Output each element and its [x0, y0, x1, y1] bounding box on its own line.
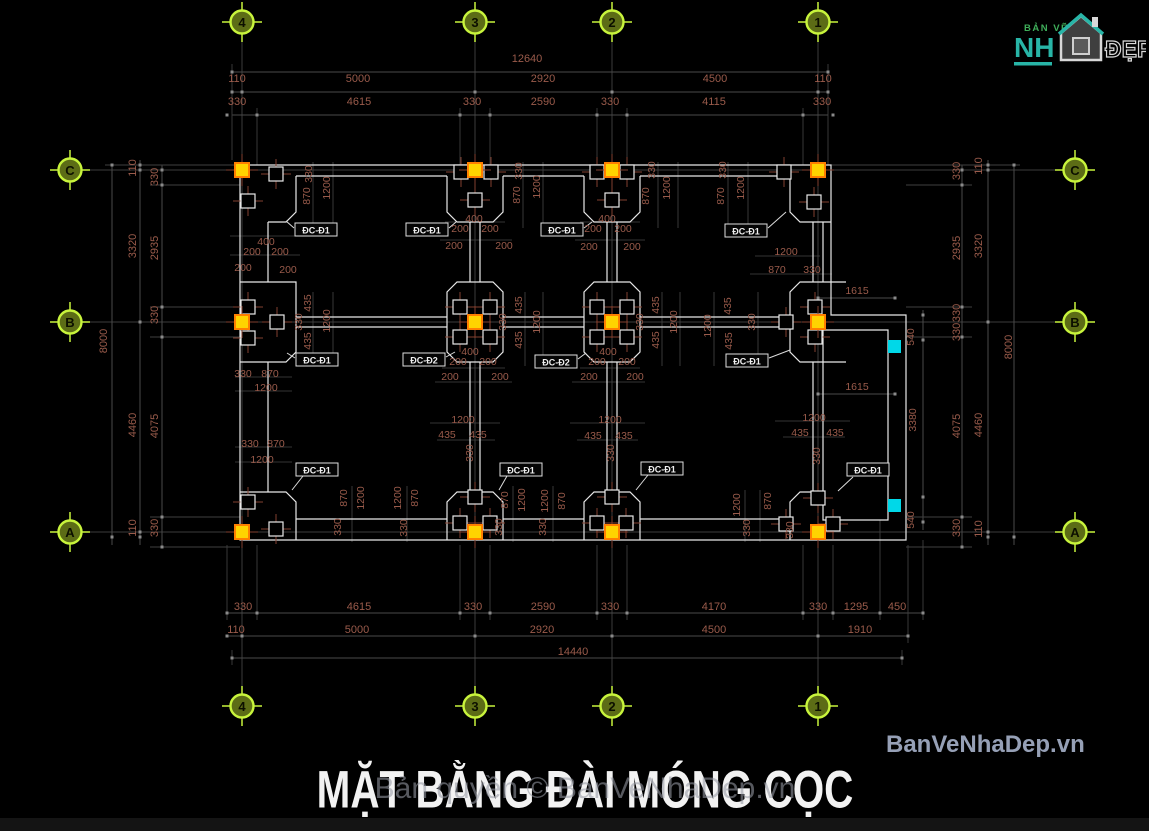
dim-label: 330	[634, 313, 646, 331]
svg-text:1: 1	[814, 15, 821, 30]
cad-viewport: 1264011050002920450011033046153302590330…	[0, 0, 1149, 831]
dim-label: 4075	[149, 414, 161, 438]
dim-tick	[226, 612, 229, 615]
axis-bubble: 4	[222, 686, 262, 726]
dim-label: 4460	[127, 413, 139, 437]
dim-tick	[111, 164, 114, 167]
axis-bubble: C	[50, 150, 90, 190]
dim-label: 870	[762, 492, 774, 510]
dim-tick	[987, 164, 990, 167]
pile-square	[605, 490, 619, 504]
dim-label: 540	[905, 511, 917, 529]
dim-label: 435	[650, 296, 662, 314]
dim-tick	[832, 612, 835, 615]
dim-tick	[987, 536, 990, 539]
dim-label: 870	[768, 264, 786, 276]
dim-label: 1200	[531, 175, 543, 199]
dim-label: 870	[499, 491, 511, 509]
dim-label: 330	[332, 518, 344, 536]
dim-label: 870	[640, 187, 652, 205]
pile-square	[483, 300, 497, 314]
dim-label: 330	[741, 519, 753, 537]
dim-tick	[474, 635, 477, 638]
dim-label: 110	[127, 519, 139, 537]
dim-tick	[817, 91, 820, 94]
svg-text:4: 4	[238, 699, 246, 714]
dim-label: 1200	[254, 382, 278, 394]
dim-tick	[922, 314, 925, 317]
dim-label: 4500	[702, 624, 726, 636]
dim-tick	[922, 612, 925, 615]
dim-tick	[256, 114, 259, 117]
dim-label: 330	[717, 161, 729, 179]
pile-square	[590, 165, 604, 179]
dim-tick	[961, 516, 964, 519]
dim-label: 1200	[516, 488, 528, 512]
dim-tick	[596, 114, 599, 117]
dim-label: 330	[605, 444, 617, 462]
dim-label: 330	[464, 601, 482, 613]
dim-label: 4460	[973, 413, 985, 437]
dim-label: 870	[338, 489, 350, 507]
pile-cap-tag: ĐC-Đ1	[548, 226, 576, 236]
dim-label: 3320	[973, 234, 985, 258]
dim-label: 200	[234, 262, 252, 274]
dim-label: 110	[814, 73, 832, 85]
dim-label: 4615	[347, 601, 371, 613]
dim-label: 330	[809, 601, 827, 613]
dim-label: 435	[302, 332, 314, 350]
pile-square	[605, 193, 619, 207]
pile-square	[620, 165, 634, 179]
pile-square	[241, 194, 255, 208]
pile-square	[808, 300, 822, 314]
dim-tick	[459, 114, 462, 117]
dim-tick	[879, 612, 882, 615]
dim-label: 2920	[530, 624, 554, 636]
column-marker	[811, 315, 825, 329]
dim-label: 330	[228, 96, 246, 108]
dim-label: 1615	[845, 381, 869, 393]
dim-label: 435	[302, 294, 314, 312]
dim-label: 200	[243, 246, 261, 258]
dim-label: 1200	[802, 412, 826, 424]
dim-label: 110	[227, 624, 245, 636]
brand-logo: BẢN VẼ NH ĐẸP	[1006, 10, 1146, 77]
dim-tick	[987, 321, 990, 324]
pile-square	[811, 491, 825, 505]
dim-label: 330	[234, 368, 252, 380]
column-marker	[235, 525, 249, 539]
dim-label: 200	[580, 241, 598, 253]
dim-label: 4115	[702, 96, 726, 108]
axis-bubble: C	[1055, 150, 1095, 190]
dim-label: 435	[722, 297, 734, 315]
dim-tick	[802, 114, 805, 117]
pile-cap-tag: ĐC-Đ1	[413, 226, 441, 236]
pile-cap-tag: ĐC-Đ1	[733, 357, 761, 367]
dim-label: 330	[241, 438, 259, 450]
pile-cap-tag: ĐC-Đ1	[303, 356, 331, 366]
dim-label: 200	[580, 371, 598, 383]
dim-label: 4170	[702, 601, 726, 613]
pile-cap-tag: ĐC-Đ2	[542, 358, 570, 368]
dim-label: 330	[951, 162, 963, 180]
dim-tick	[226, 114, 229, 117]
dim-label: 870	[715, 187, 727, 205]
dim-label: 435	[584, 430, 602, 442]
dim-label: 200	[491, 371, 509, 383]
dim-tick	[1013, 536, 1016, 539]
pile-cap-tag: ĐC-Đ1	[302, 226, 330, 236]
dim-label: 870	[301, 187, 313, 205]
svg-text:A: A	[1070, 525, 1080, 540]
dim-label: 330	[537, 518, 549, 536]
dim-tick	[832, 114, 835, 117]
dim-label: 330	[813, 96, 831, 108]
dim-tick	[256, 612, 259, 615]
pile-square	[808, 330, 822, 344]
column-marker	[811, 163, 825, 177]
dim-tick	[161, 516, 164, 519]
dim-label: 870	[267, 438, 285, 450]
dim-tick	[817, 393, 820, 396]
dim-label: 330	[234, 601, 252, 613]
svg-text:C: C	[1070, 163, 1080, 178]
column-marker	[468, 315, 482, 329]
dim-label: 5000	[346, 73, 370, 85]
column-marker	[605, 163, 619, 177]
dim-tick	[626, 114, 629, 117]
dim-label: 200	[626, 371, 644, 383]
dim-tick	[907, 635, 910, 638]
axis-bubble: A	[1055, 512, 1095, 552]
dim-label: 200	[451, 223, 469, 235]
dim-label: 3320	[127, 234, 139, 258]
column-marker	[468, 525, 482, 539]
dim-tick	[901, 657, 904, 660]
pile-square	[468, 490, 482, 504]
axis-bubble: 1	[798, 686, 838, 726]
dim-label: 435	[513, 331, 525, 349]
dim-label: 200	[588, 356, 606, 368]
pile-square	[619, 516, 633, 530]
dim-label: 200	[279, 264, 297, 276]
dim-label: 2590	[531, 601, 555, 613]
axis-bubble: B	[1055, 302, 1095, 342]
house-icon	[1059, 15, 1103, 60]
inner-dimension-lines	[230, 162, 850, 542]
dim-label: 330	[951, 323, 963, 341]
dim-tick	[961, 546, 964, 549]
svg-text:B: B	[1070, 315, 1079, 330]
dim-label: 1200	[250, 454, 274, 466]
dim-tick	[894, 297, 897, 300]
dim-label: 1200	[531, 310, 543, 334]
dim-label: 200	[495, 240, 513, 252]
window-bottom-strip	[0, 818, 1149, 831]
dim-label: 1200	[661, 176, 673, 200]
dim-label: 330	[811, 447, 823, 465]
dim-label: 5000	[345, 624, 369, 636]
pile-square	[590, 516, 604, 530]
dim-tick	[626, 612, 629, 615]
dim-label: 330	[293, 313, 305, 331]
pile-square	[453, 330, 467, 344]
dim-tick	[817, 297, 820, 300]
dim-label: 330	[803, 264, 821, 276]
dim-tick	[827, 91, 830, 94]
dim-label: 2935	[149, 236, 161, 260]
dim-tick	[802, 612, 805, 615]
dim-label: 1200	[668, 310, 680, 334]
dim-label: 1200	[451, 414, 475, 426]
dim-label: 1615	[845, 285, 869, 297]
axis-bubble: 3	[455, 686, 495, 726]
dim-tick	[459, 612, 462, 615]
pile-square	[241, 495, 255, 509]
dim-label: 435	[791, 427, 809, 439]
dim-tick	[611, 635, 614, 638]
dim-label: 870	[511, 186, 523, 204]
pile-square	[620, 300, 634, 314]
pile-cap-tag: ĐC-Đ1	[732, 227, 760, 237]
dim-label: 1200	[539, 489, 551, 513]
dim-label: 330	[784, 521, 796, 539]
dim-label: 110	[973, 157, 985, 175]
dim-label: 330	[149, 519, 161, 537]
dim-tick	[231, 657, 234, 660]
pile-square	[269, 167, 283, 181]
dim-tick	[1013, 164, 1016, 167]
dim-label: 330	[149, 306, 161, 324]
dim-label: 200	[449, 356, 467, 368]
svg-text:2: 2	[608, 15, 615, 30]
dim-label: 435	[723, 332, 735, 350]
column-marker	[605, 315, 619, 329]
pile-cap-tag: ĐC-Đ1	[507, 466, 535, 476]
dim-label: 330	[149, 168, 161, 186]
dim-label: 450	[888, 601, 906, 613]
dim-tick	[231, 91, 234, 94]
dim-label: 1200	[355, 486, 367, 510]
pile-square	[468, 193, 482, 207]
dim-label: 435	[615, 430, 633, 442]
dim-label: 4075	[951, 414, 963, 438]
dim-label: 330	[601, 601, 619, 613]
dim-tick	[611, 91, 614, 94]
dim-label: 200	[441, 371, 459, 383]
axis-bubble: B	[50, 302, 90, 342]
dim-label: 330	[513, 162, 525, 180]
dim-label: 1200	[735, 176, 747, 200]
dim-tick	[474, 91, 477, 94]
dim-label: 200	[614, 223, 632, 235]
pile-cap-tag: ĐC-Đ1	[854, 466, 882, 476]
axis-bubble: 1	[798, 2, 838, 42]
pile-square	[241, 331, 255, 345]
dim-tick	[894, 393, 897, 396]
tag-leader-lines	[286, 212, 853, 491]
dim-tick	[139, 321, 142, 324]
dim-tick	[922, 339, 925, 342]
pile-square	[241, 300, 255, 314]
logo-underline	[1014, 62, 1052, 66]
dim-label: 200	[271, 246, 289, 258]
axis-bubble: A	[50, 512, 90, 552]
dim-label: 8000	[98, 329, 110, 353]
pile-square	[826, 517, 840, 531]
svg-text:3: 3	[471, 699, 478, 714]
dim-label: 330	[464, 444, 476, 462]
dim-label: 435	[469, 429, 487, 441]
dim-label: 1910	[848, 624, 872, 636]
cyan-marker	[888, 340, 901, 353]
foundation-plan-drawing: 1264011050002920450011033046153302590330…	[0, 0, 1149, 831]
pile-square	[453, 516, 467, 530]
column-marker	[468, 163, 482, 177]
dim-label: 870	[556, 492, 568, 510]
column-marker	[605, 525, 619, 539]
svg-text:B: B	[65, 315, 74, 330]
dim-label: 200	[445, 240, 463, 252]
dim-tick	[241, 91, 244, 94]
dim-label: 1200	[321, 176, 333, 200]
svg-text:C: C	[65, 163, 75, 178]
pile-square	[590, 330, 604, 344]
dim-label: 870	[409, 489, 421, 507]
logo-accent-text: ĐẸP	[1105, 36, 1146, 62]
dim-label: 200	[623, 241, 641, 253]
dim-label: 330	[493, 518, 505, 536]
svg-text:A: A	[65, 525, 75, 540]
pile-square	[590, 300, 604, 314]
dim-tick	[596, 612, 599, 615]
axis-bubble: 2	[592, 686, 632, 726]
dim-label: 1295	[844, 601, 868, 613]
dim-tick	[922, 521, 925, 524]
dim-label: 110	[127, 159, 139, 177]
copyright-watermark: Bản quyền © BanVeNhaDep.vn	[0, 772, 1149, 806]
dim-label: 1200	[774, 246, 798, 258]
dim-label: 435	[826, 427, 844, 439]
dim-label: 2920	[531, 73, 555, 85]
dim-tick	[161, 336, 164, 339]
dim-label: 1200	[598, 414, 622, 426]
dim-label: 330	[646, 161, 658, 179]
dim-label: 330	[497, 313, 509, 331]
dim-label: 330	[463, 96, 481, 108]
dim-label: 330	[303, 165, 315, 183]
pile-cap-tag: ĐC-Đ1	[303, 466, 331, 476]
dim-tick	[987, 531, 990, 534]
pile-square	[777, 165, 791, 179]
dim-label: 540	[905, 328, 917, 346]
dim-tick	[489, 114, 492, 117]
dim-tick	[961, 184, 964, 187]
dim-label: 1200	[702, 314, 714, 338]
dim-label: 8000	[1003, 335, 1015, 359]
foundation-outline	[240, 165, 906, 540]
dim-tick	[161, 546, 164, 549]
dim-label: 1200	[321, 309, 333, 333]
dim-tick	[922, 496, 925, 499]
svg-text:4: 4	[238, 15, 246, 30]
dim-tick	[987, 169, 990, 172]
column-marker	[811, 525, 825, 539]
dim-label: 110	[228, 73, 246, 85]
website-watermark: BanVeNhaDep.vn	[886, 731, 1085, 759]
dim-label: 110	[973, 520, 985, 538]
pile-square	[484, 165, 498, 179]
pile-square	[483, 330, 497, 344]
dim-tick	[817, 635, 820, 638]
dim-tick	[111, 536, 114, 539]
pile-square	[454, 165, 468, 179]
dim-label: 330	[601, 96, 619, 108]
dim-label: 330	[746, 313, 758, 331]
pile-cap-tag: ĐC-Đ1	[648, 465, 676, 475]
dim-label: 330	[398, 519, 410, 537]
dim-label: 3380	[907, 408, 919, 432]
dim-label: 435	[438, 429, 456, 441]
dim-label: 12640	[512, 53, 543, 65]
pile-square	[807, 195, 821, 209]
dim-label: 330	[951, 519, 963, 537]
pile-square	[453, 300, 467, 314]
axis-bubble: 3	[455, 2, 495, 42]
dim-tick	[489, 612, 492, 615]
dim-label: 1200	[731, 493, 743, 517]
dim-label: 435	[513, 296, 525, 314]
column-marker	[235, 315, 249, 329]
dim-label: 4615	[347, 96, 371, 108]
svg-text:1: 1	[814, 699, 821, 714]
dim-label: 14440	[558, 646, 589, 658]
axis-bubble: 2	[592, 2, 632, 42]
dim-label: 2935	[951, 236, 963, 260]
dim-label: 200	[584, 223, 602, 235]
column-marker	[235, 163, 249, 177]
pile-square	[620, 330, 634, 344]
svg-text:2: 2	[608, 699, 615, 714]
dim-label: 200	[481, 223, 499, 235]
pile-cap-tag: ĐC-Đ2	[410, 356, 438, 366]
pile-square	[269, 522, 283, 536]
dim-label: 200	[618, 356, 636, 368]
dim-label: 330	[951, 304, 963, 322]
pile-square	[270, 315, 284, 329]
dim-label: 2590	[531, 96, 555, 108]
logo-main-text: NH	[1014, 32, 1054, 63]
cyan-marker	[888, 499, 901, 512]
axis-bubble: 4	[222, 2, 262, 42]
svg-text:3: 3	[471, 15, 478, 30]
dim-label: 870	[261, 368, 279, 380]
dim-label: 4500	[703, 73, 727, 85]
dim-label: 200	[479, 356, 497, 368]
dim-label: 1200	[392, 486, 404, 510]
dim-label: 435	[650, 331, 662, 349]
pile-square	[779, 315, 793, 329]
